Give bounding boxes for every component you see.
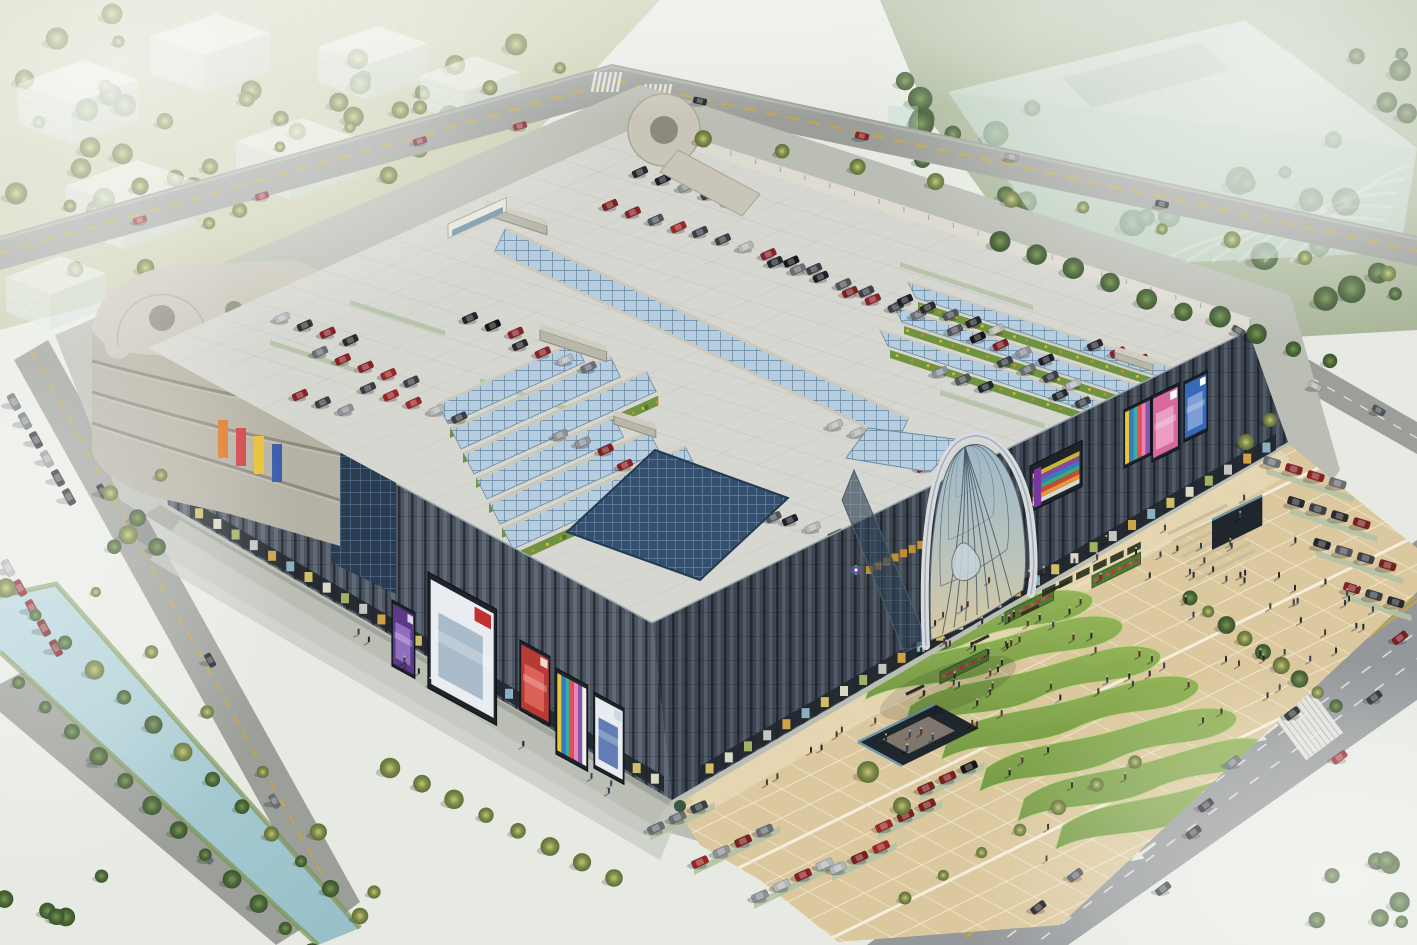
billboard-purple-banner bbox=[392, 600, 415, 678]
aerial-mall-rendering bbox=[0, 0, 1417, 945]
billboard-pink-fashion bbox=[1152, 383, 1179, 462]
billboard-blue-ad bbox=[1184, 371, 1207, 442]
billboard-rainbow-pencils bbox=[556, 668, 588, 771]
billboard-white-blue bbox=[594, 692, 624, 784]
parasol bbox=[674, 800, 686, 812]
billboard-rainbow-vertical bbox=[1124, 397, 1151, 468]
